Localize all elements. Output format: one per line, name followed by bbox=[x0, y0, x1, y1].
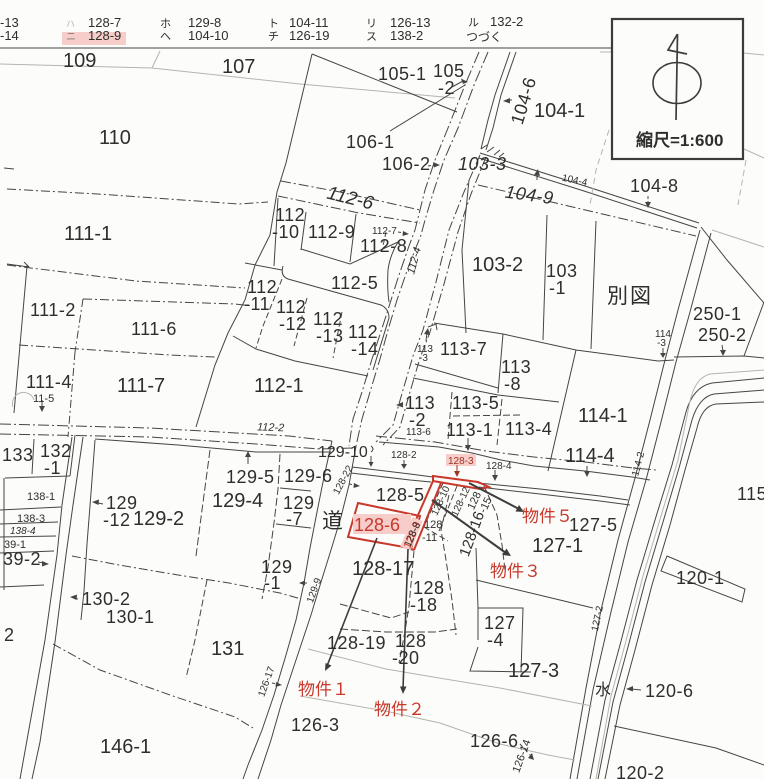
svg-text:128-3: 128-3 bbox=[448, 456, 474, 467]
svg-text:107: 107 bbox=[222, 56, 255, 78]
svg-text:-12: -12 bbox=[279, 314, 307, 334]
svg-text:250-2: 250-2 bbox=[698, 325, 747, 345]
svg-text:128: 128 bbox=[424, 519, 442, 531]
svg-text:111-6: 111-6 bbox=[131, 319, 177, 339]
svg-text:103-2: 103-2 bbox=[472, 254, 523, 276]
svg-text:128-22: 128-22 bbox=[331, 463, 356, 496]
svg-text:105-1: 105-1 bbox=[378, 64, 427, 84]
svg-text:126-6: 126-6 bbox=[470, 731, 519, 751]
svg-text:103-3: 103-3 bbox=[458, 154, 507, 174]
svg-text:106-2: 106-2 bbox=[382, 154, 431, 174]
svg-text:138-3: 138-3 bbox=[17, 513, 45, 525]
svg-text:128-19: 128-19 bbox=[327, 633, 386, 653]
svg-text:2: 2 bbox=[4, 625, 15, 645]
svg-text:114-1: 114-1 bbox=[578, 405, 628, 427]
svg-text:ル: ル bbox=[468, 17, 479, 29]
svg-text:-11: -11 bbox=[244, 294, 270, 314]
svg-text:129-5: 129-5 bbox=[226, 467, 275, 487]
svg-text:133: 133 bbox=[2, 445, 34, 465]
svg-text:-1: -1 bbox=[549, 278, 566, 298]
svg-text:つづく: つづく bbox=[466, 30, 502, 44]
svg-text:104-8: 104-8 bbox=[630, 176, 679, 196]
svg-text:127-1: 127-1 bbox=[532, 535, 583, 557]
svg-text:39-2: 39-2 bbox=[3, 549, 41, 569]
svg-text:127-3: 127-3 bbox=[508, 660, 559, 682]
svg-text:127-2: 127-2 bbox=[590, 605, 606, 633]
svg-text:ニ: ニ bbox=[66, 32, 76, 43]
svg-text:109: 109 bbox=[63, 50, 96, 72]
svg-text:250-1: 250-1 bbox=[693, 304, 742, 324]
svg-text:-20: -20 bbox=[392, 648, 420, 668]
svg-text:126-3: 126-3 bbox=[291, 715, 340, 735]
svg-text:-12: -12 bbox=[103, 510, 131, 530]
svg-text:111-7: 111-7 bbox=[117, 375, 165, 397]
svg-text:104-1: 104-1 bbox=[534, 100, 585, 122]
svg-text:113-5: 113-5 bbox=[452, 393, 499, 413]
svg-text:120-1: 120-1 bbox=[676, 568, 725, 588]
svg-text:120-2: 120-2 bbox=[616, 763, 665, 779]
svg-text:130-2: 130-2 bbox=[82, 589, 131, 609]
svg-text:-1: -1 bbox=[44, 458, 61, 478]
svg-text:114-2: 114-2 bbox=[630, 450, 647, 477]
svg-text:チ: チ bbox=[268, 30, 279, 43]
svg-text:ヘ: ヘ bbox=[160, 31, 171, 43]
svg-text:146-1: 146-1 bbox=[100, 736, 151, 758]
svg-text:-14: -14 bbox=[351, 339, 379, 359]
svg-text:128-9: 128-9 bbox=[88, 28, 121, 43]
svg-text:112-4: 112-4 bbox=[405, 246, 424, 276]
svg-text:物件１: 物件１ bbox=[298, 680, 349, 699]
svg-text:128-16: 128-16 bbox=[456, 509, 488, 559]
svg-text:104-9: 104-9 bbox=[504, 182, 555, 209]
svg-text:104-10: 104-10 bbox=[188, 28, 228, 43]
svg-text:114-4: 114-4 bbox=[565, 445, 615, 467]
svg-text:104-4: 104-4 bbox=[561, 173, 589, 189]
svg-text:129-6: 129-6 bbox=[284, 466, 333, 486]
svg-text:-10: -10 bbox=[272, 222, 300, 242]
svg-text:112-8: 112-8 bbox=[360, 236, 407, 256]
svg-text:別図: 別図 bbox=[607, 285, 653, 308]
svg-text:127-5: 127-5 bbox=[569, 515, 618, 535]
svg-text:112-9: 112-9 bbox=[308, 222, 355, 242]
svg-text:129-9: 129-9 bbox=[305, 576, 324, 604]
svg-text:-14: -14 bbox=[0, 28, 19, 43]
svg-text:112-5: 112-5 bbox=[331, 273, 378, 293]
svg-text:リ: リ bbox=[366, 18, 377, 30]
svg-text:-13: -13 bbox=[316, 326, 344, 346]
svg-text:11-5: 11-5 bbox=[33, 393, 54, 405]
svg-text:水: 水 bbox=[595, 681, 611, 699]
svg-text:129-10: 129-10 bbox=[318, 444, 368, 461]
svg-text:113-4: 113-4 bbox=[505, 419, 552, 439]
svg-text:物件２: 物件２ bbox=[374, 700, 425, 719]
svg-text:128-6: 128-6 bbox=[354, 515, 400, 535]
svg-text:129-2: 129-2 bbox=[133, 508, 184, 530]
svg-text:ハ: ハ bbox=[66, 19, 75, 29]
svg-text:物件５: 物件５ bbox=[522, 507, 573, 526]
svg-text:-7: -7 bbox=[286, 509, 303, 529]
svg-text:128-2: 128-2 bbox=[391, 450, 417, 461]
svg-text:-8: -8 bbox=[504, 374, 521, 394]
svg-text:ト: ト bbox=[268, 18, 279, 30]
svg-text:111-4: 111-4 bbox=[26, 372, 72, 392]
svg-text:112-1: 112-1 bbox=[254, 375, 304, 397]
svg-text:138-1: 138-1 bbox=[27, 491, 55, 503]
svg-text:-18: -18 bbox=[410, 595, 438, 615]
svg-text:106-1: 106-1 bbox=[346, 132, 395, 152]
svg-text:-2: -2 bbox=[438, 78, 455, 98]
svg-text:129-4: 129-4 bbox=[212, 490, 263, 512]
svg-text:113-1: 113-1 bbox=[446, 420, 493, 440]
svg-text:128-5: 128-5 bbox=[376, 485, 425, 505]
svg-text:110: 110 bbox=[99, 127, 131, 149]
svg-text:130-1: 130-1 bbox=[106, 607, 155, 627]
svg-text:111-2: 111-2 bbox=[30, 300, 76, 320]
svg-text:120-6: 120-6 bbox=[645, 681, 694, 701]
svg-text:131: 131 bbox=[211, 638, 244, 660]
svg-text:138-4: 138-4 bbox=[10, 526, 36, 537]
svg-text:ス: ス bbox=[366, 31, 377, 43]
svg-text:112-6: 112-6 bbox=[325, 183, 376, 215]
svg-text:-11: -11 bbox=[422, 532, 437, 544]
svg-text:-4: -4 bbox=[487, 630, 504, 650]
svg-text:-1: -1 bbox=[264, 573, 281, 593]
svg-text:113-6: 113-6 bbox=[406, 427, 431, 438]
svg-text:132-2: 132-2 bbox=[490, 14, 523, 29]
svg-text:縮尺=1:600: 縮尺=1:600 bbox=[636, 130, 723, 150]
svg-text:128-17: 128-17 bbox=[352, 558, 414, 580]
svg-text:115-: 115- bbox=[737, 484, 764, 504]
svg-text:ホ: ホ bbox=[160, 17, 171, 30]
svg-text:138-2: 138-2 bbox=[390, 28, 423, 43]
svg-text:126-19: 126-19 bbox=[289, 28, 329, 43]
svg-text:道: 道 bbox=[322, 510, 343, 533]
svg-text:113-7: 113-7 bbox=[440, 339, 487, 359]
svg-text:物件３: 物件３ bbox=[490, 562, 541, 581]
svg-text:-3: -3 bbox=[657, 338, 666, 349]
svg-text:112-2: 112-2 bbox=[257, 421, 285, 434]
svg-text:-3: -3 bbox=[419, 353, 428, 364]
svg-text:128-4: 128-4 bbox=[486, 461, 512, 472]
svg-text:111-1: 111-1 bbox=[64, 223, 112, 245]
